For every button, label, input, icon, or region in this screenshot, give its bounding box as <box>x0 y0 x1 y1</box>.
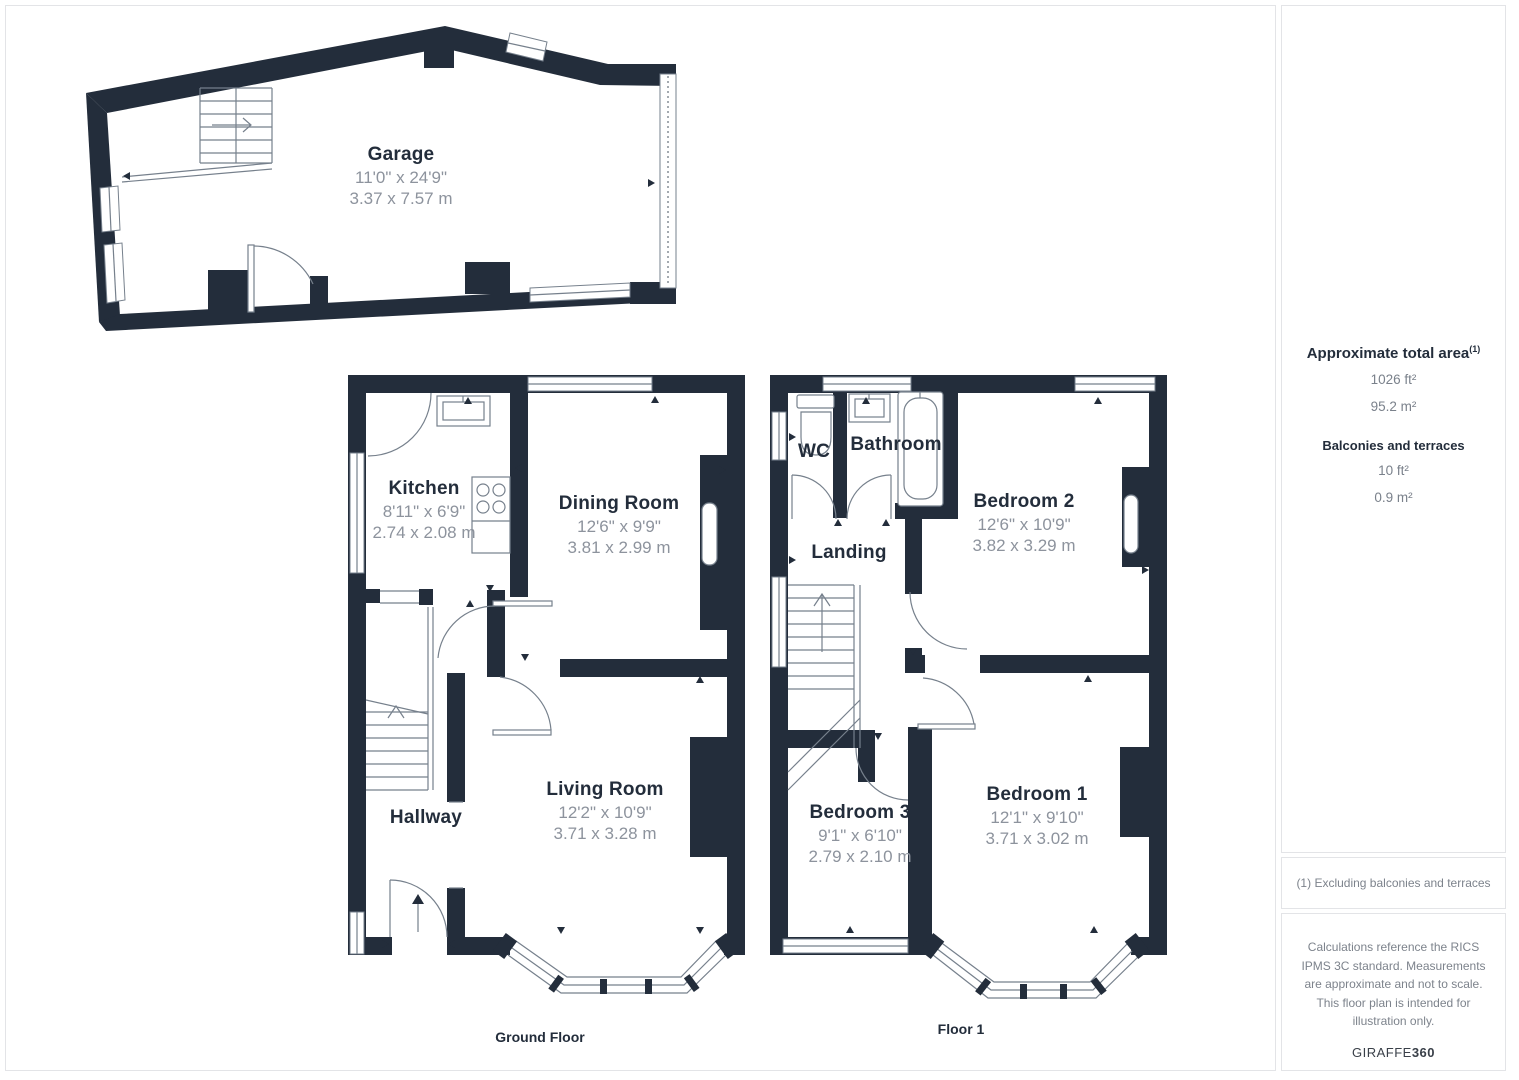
room-name: Kitchen <box>372 477 475 501</box>
room-label-hallway: Hallway <box>390 806 462 830</box>
room-name: Bedroom 2 <box>972 490 1075 514</box>
footnote-text: (1) Excluding balconies and terraces <box>1296 876 1490 890</box>
balconies-title: Balconies and terraces <box>1282 438 1505 453</box>
room-dims-metric: 3.82 x 3.29 m <box>972 535 1075 556</box>
room-label-bedroom-3: Bedroom 3 9'1" x 6'10" 2.79 x 2.10 m <box>808 801 911 867</box>
room-dims-metric: 3.37 x 7.57 m <box>349 188 452 209</box>
balconies-ft: 10 ft² <box>1282 462 1505 480</box>
room-dims-imperial: 9'1" x 6'10" <box>808 825 911 846</box>
room-name: Bedroom 3 <box>808 801 911 825</box>
f1-radiator <box>1124 495 1138 553</box>
room-dims-imperial: 12'1" x 9'10" <box>985 807 1088 828</box>
room-name: Dining Room <box>559 492 679 516</box>
gf-stairs <box>366 700 428 790</box>
room-dims-imperial: 12'2" x 10'9" <box>546 802 663 823</box>
total-area-superscript: (1) <box>1469 344 1480 354</box>
gf-walls <box>348 375 745 955</box>
total-area-m: 95.2 m² <box>1282 398 1505 416</box>
room-name: Living Room <box>546 778 663 802</box>
room-label-bedroom-1: Bedroom 1 12'1" x 9'10" 3.71 x 3.02 m <box>985 783 1088 849</box>
gf-bay-window <box>493 933 739 994</box>
room-label-dining-room: Dining Room 12'6" x 9'9" 3.81 x 2.99 m <box>559 492 679 558</box>
total-area-ft: 1026 ft² <box>1282 371 1505 389</box>
room-dims-metric: 3.71 x 3.02 m <box>985 828 1088 849</box>
caption-ground-floor: Ground Floor <box>495 1029 584 1045</box>
room-name: Garage <box>349 143 452 167</box>
room-name: Bathroom <box>850 433 941 457</box>
room-label-bathroom: Bathroom <box>850 433 941 457</box>
room-dims-imperial: 8'11" x 6'9" <box>372 501 475 522</box>
room-name: WC <box>798 440 830 464</box>
room-dims-imperial: 12'6" x 9'9" <box>559 516 679 537</box>
room-label-landing: Landing <box>811 541 886 565</box>
room-name: Hallway <box>390 806 462 830</box>
gf-front-door <box>390 880 447 937</box>
room-dims-metric: 2.79 x 2.10 m <box>808 846 911 867</box>
total-area-title: Approximate total area(1) <box>1282 344 1505 362</box>
room-label-living-room: Living Room 12'2" x 10'9" 3.71 x 3.28 m <box>546 778 663 844</box>
footnote-panel: (1) Excluding balconies and terraces <box>1281 857 1506 909</box>
room-dims-imperial: 12'6" x 10'9" <box>972 514 1075 535</box>
f1-stairs <box>788 585 860 790</box>
brand-number: 360 <box>1412 1045 1435 1060</box>
balconies-m: 0.9 m² <box>1282 489 1505 507</box>
gf-radiator <box>702 503 717 565</box>
disclaimer-panel: Calculations reference the RICS IPMS 3C … <box>1281 913 1506 1071</box>
room-name: Landing <box>811 541 886 565</box>
room-dims-metric: 3.81 x 2.99 m <box>559 537 679 558</box>
room-dims-metric: 3.71 x 3.28 m <box>546 823 663 844</box>
room-dims-imperial: 11'0" x 24'9" <box>349 167 452 188</box>
room-dims-metric: 2.74 x 2.08 m <box>372 522 475 543</box>
f1-sink-icon <box>849 394 890 422</box>
brand-logo: GIRAFFE360 <box>1296 1045 1491 1060</box>
garage-door-opening <box>660 74 676 288</box>
floor-1-plan <box>770 375 1167 999</box>
room-name: Bedroom 1 <box>985 783 1088 807</box>
ground-floor-plan <box>348 375 745 994</box>
brand-name: GIRAFFE <box>1352 1045 1412 1060</box>
total-area-title-text: Approximate total area <box>1307 345 1470 362</box>
garage-door <box>248 245 313 312</box>
floorplan-page: Garage 11'0" x 24'9" 3.37 x 7.57 m Kitch… <box>0 0 1519 1080</box>
room-label-wc: WC <box>798 440 830 464</box>
room-label-bedroom-2: Bedroom 2 12'6" x 10'9" 3.82 x 3.29 m <box>972 490 1075 556</box>
area-summary-panel: Approximate total area(1) 1026 ft² 95.2 … <box>1281 5 1506 853</box>
f1-bay-window <box>920 933 1150 999</box>
caption-floor-1: Floor 1 <box>938 1021 985 1037</box>
room-label-garage: Garage 11'0" x 24'9" 3.37 x 7.57 m <box>349 143 452 209</box>
room-label-kitchen: Kitchen 8'11" x 6'9" 2.74 x 2.08 m <box>372 477 475 543</box>
disclaimer-text: Calculations reference the RICS IPMS 3C … <box>1296 938 1491 1031</box>
